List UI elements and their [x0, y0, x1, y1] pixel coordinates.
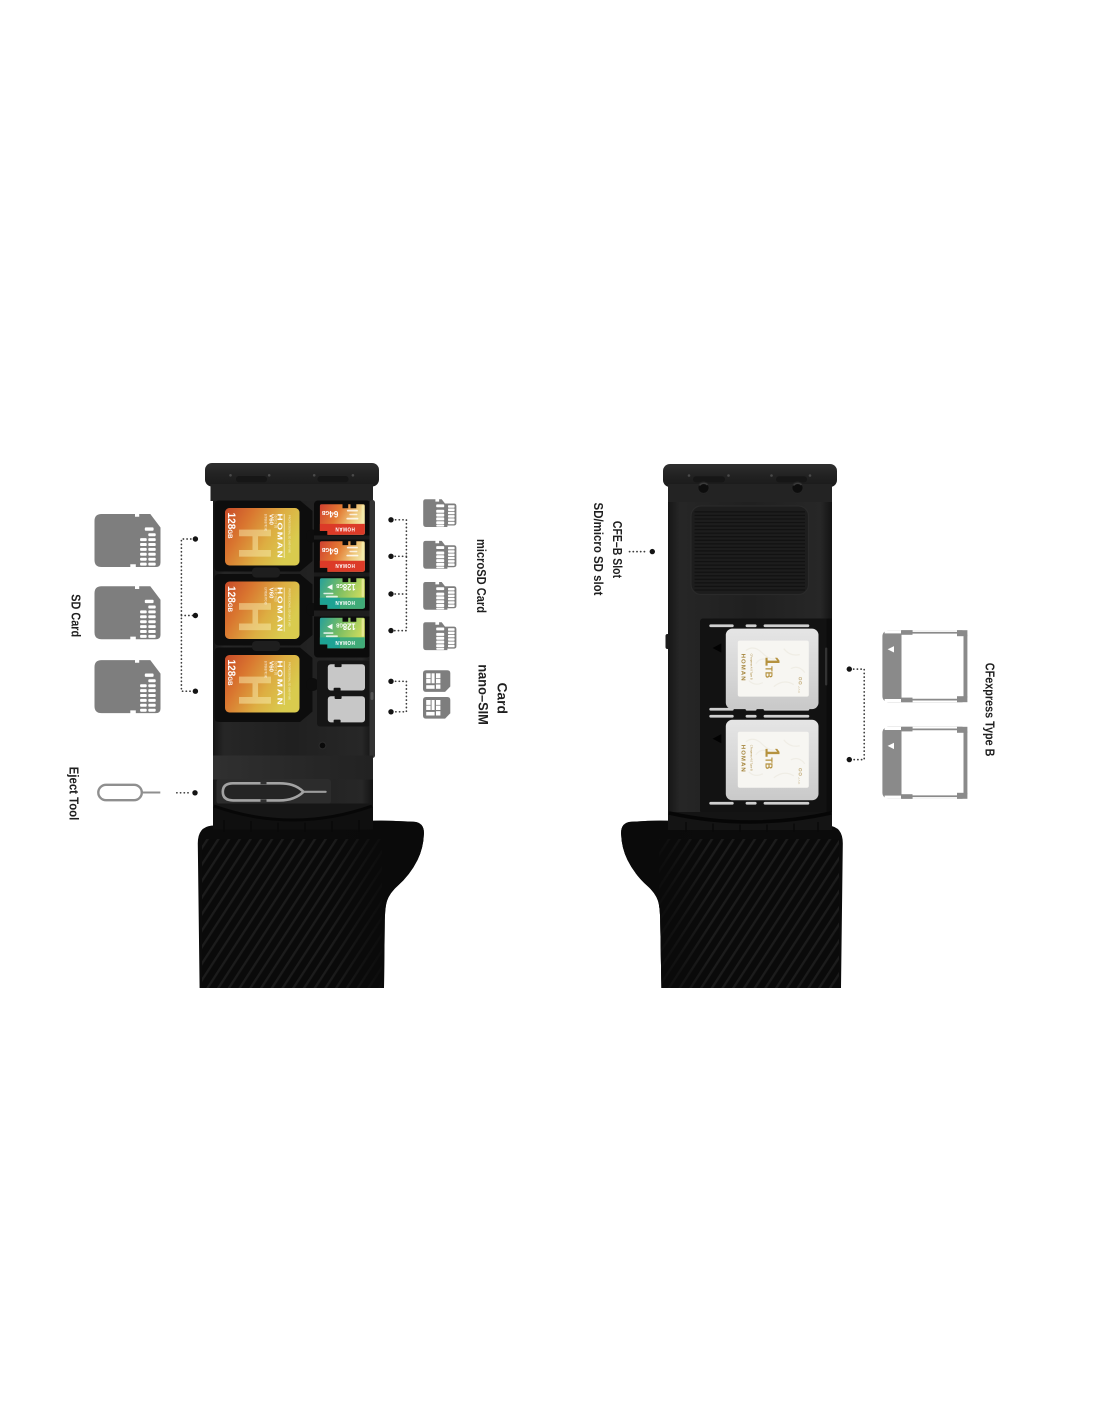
- svg-text:CFexpress Type B: CFexpress Type B: [983, 663, 997, 757]
- svg-text:SD Card: SD Card: [68, 594, 82, 637]
- svg-text:nano–SIM: nano–SIM: [475, 664, 491, 725]
- svg-text:microSD Card: microSD Card: [474, 539, 488, 613]
- svg-text:CFE–B Slot: CFE–B Slot: [610, 521, 624, 579]
- svg-text:SD/micro SD slot: SD/micro SD slot: [591, 503, 605, 597]
- svg-text:Eject Tool: Eject Tool: [66, 767, 80, 821]
- svg-text:Card: Card: [495, 682, 511, 714]
